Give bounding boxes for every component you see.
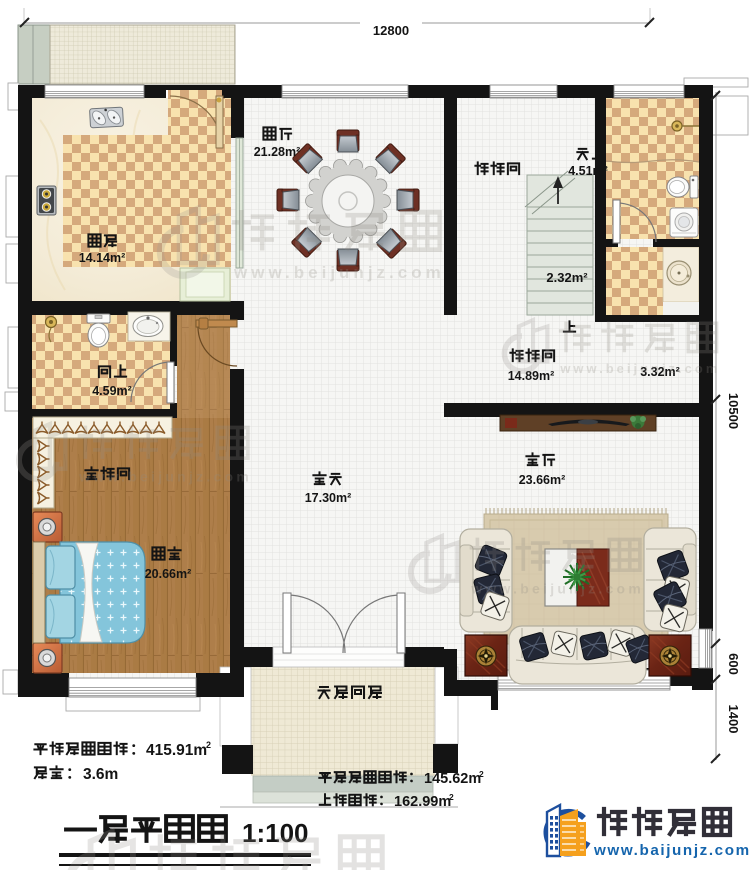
svg-text:2: 2: [206, 740, 211, 750]
svg-text:17.30m²: 17.30m²: [305, 491, 352, 505]
svg-text:www.baijunjz.com: www.baijunjz.com: [593, 842, 750, 859]
svg-text:1400: 1400: [726, 705, 741, 734]
svg-text:3.6m: 3.6m: [83, 766, 118, 783]
svg-text:：: ：: [378, 792, 392, 808]
svg-text:2: 2: [479, 769, 484, 779]
svg-text:www.beijunjz.com: www.beijunjz.com: [233, 263, 445, 282]
svg-text:4.51m²: 4.51m²: [568, 164, 608, 178]
svg-text:：: ：: [408, 769, 422, 785]
svg-text:21.28m²: 21.28m²: [254, 145, 301, 159]
svg-text:www.beijunjz.com: www.beijunjz.com: [559, 361, 720, 376]
svg-text:2: 2: [449, 792, 454, 802]
svg-text:：: ：: [66, 765, 81, 782]
svg-text:12800: 12800: [373, 23, 409, 38]
svg-text:10500: 10500: [726, 393, 741, 429]
svg-text:23.66m²: 23.66m²: [519, 473, 566, 487]
svg-text:145.62m: 145.62m: [424, 771, 481, 787]
svg-text:4.59m²: 4.59m²: [92, 384, 132, 398]
svg-text:20.66m²: 20.66m²: [145, 567, 192, 581]
svg-text:162.99m: 162.99m: [394, 794, 451, 810]
svg-text:：: ：: [130, 741, 145, 758]
svg-text:www.beijunjz.com: www.beijunjz.com: [470, 580, 644, 596]
svg-text:14.14m²: 14.14m²: [79, 251, 126, 265]
svg-text:600: 600: [726, 653, 741, 675]
svg-text:2.32m²: 2.32m²: [546, 270, 588, 285]
svg-text:415.91m: 415.91m: [146, 742, 207, 759]
svg-text:www.beijunjz.com: www.beijunjz.com: [78, 468, 252, 484]
